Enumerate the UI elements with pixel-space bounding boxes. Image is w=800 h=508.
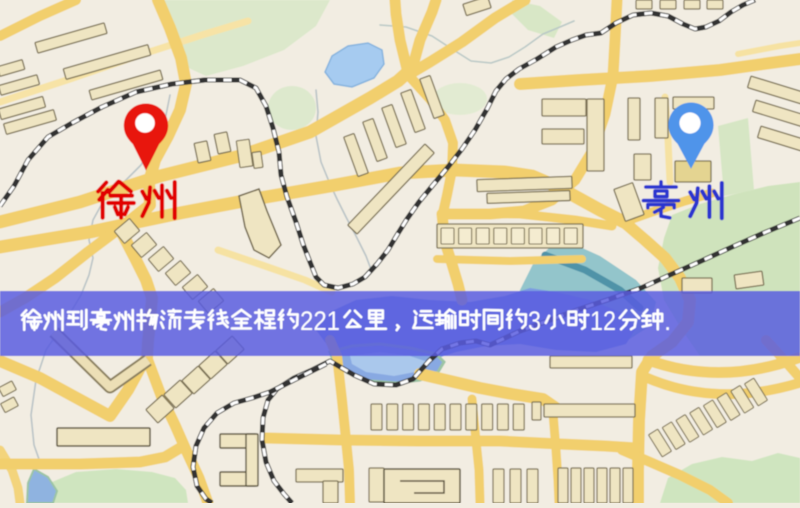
svg-text:.: . bbox=[664, 306, 671, 336]
svg-text:221: 221 bbox=[300, 306, 340, 336]
svg-text:3: 3 bbox=[528, 306, 541, 336]
svg-text:12: 12 bbox=[590, 306, 616, 336]
